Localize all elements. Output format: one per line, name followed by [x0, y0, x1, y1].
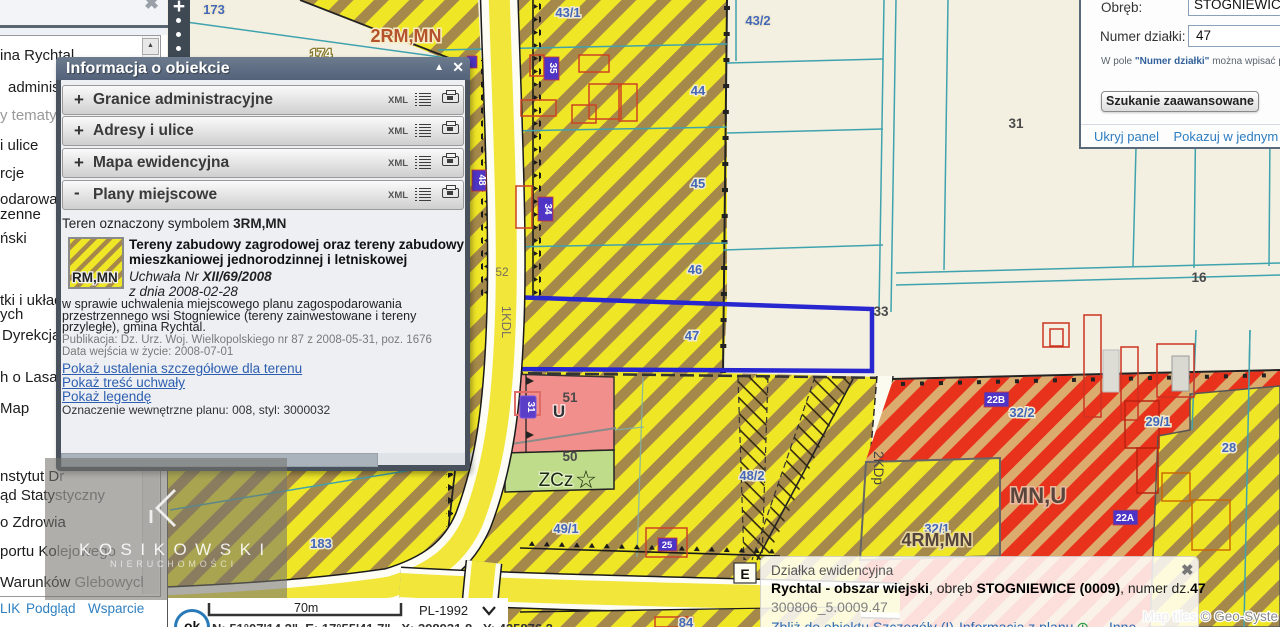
svg-text:31: 31	[525, 401, 536, 413]
svg-text:2KDp: 2KDp	[871, 451, 886, 485]
svg-text:35: 35	[547, 62, 558, 74]
svg-text:52: 52	[495, 265, 509, 279]
svg-text:48: 48	[476, 174, 487, 186]
svg-text:31: 31	[1008, 116, 1024, 131]
svg-text:1KDL: 1KDL	[499, 306, 514, 339]
svg-text:29/1: 29/1	[1145, 414, 1170, 429]
svg-text:☆: ☆	[575, 466, 597, 494]
svg-text:RM,MN: RM,MN	[72, 270, 118, 285]
svg-text:U: U	[553, 402, 565, 421]
svg-text:43/1: 43/1	[555, 5, 580, 20]
svg-text:45: 45	[691, 176, 705, 191]
svg-text:22B: 22B	[987, 395, 1005, 406]
svg-text:47: 47	[685, 328, 699, 343]
svg-text:ZCz: ZCz	[539, 470, 574, 491]
svg-text:25: 25	[662, 540, 673, 551]
svg-text:32/2: 32/2	[1009, 405, 1034, 420]
svg-text:4RM,MN: 4RM,MN	[902, 530, 973, 550]
svg-text:2RM,MN: 2RM,MN	[371, 26, 442, 46]
svg-text:46: 46	[688, 262, 702, 277]
svg-text:50: 50	[562, 449, 577, 464]
svg-text:84: 84	[679, 615, 694, 627]
svg-text:48/2: 48/2	[739, 468, 764, 483]
svg-text:44: 44	[691, 83, 706, 98]
svg-text:43/2: 43/2	[745, 13, 770, 28]
svg-text:49/1: 49/1	[553, 521, 578, 536]
svg-text:E: E	[740, 566, 749, 582]
svg-text:173: 173	[203, 2, 225, 17]
svg-text:16: 16	[1191, 270, 1207, 285]
svg-text:28: 28	[1222, 440, 1236, 455]
svg-text:MN,U: MN,U	[1010, 483, 1066, 508]
svg-text:22A: 22A	[1116, 513, 1134, 524]
svg-text:183: 183	[310, 536, 332, 551]
svg-text:34: 34	[542, 203, 553, 215]
svg-text:33: 33	[873, 304, 889, 319]
